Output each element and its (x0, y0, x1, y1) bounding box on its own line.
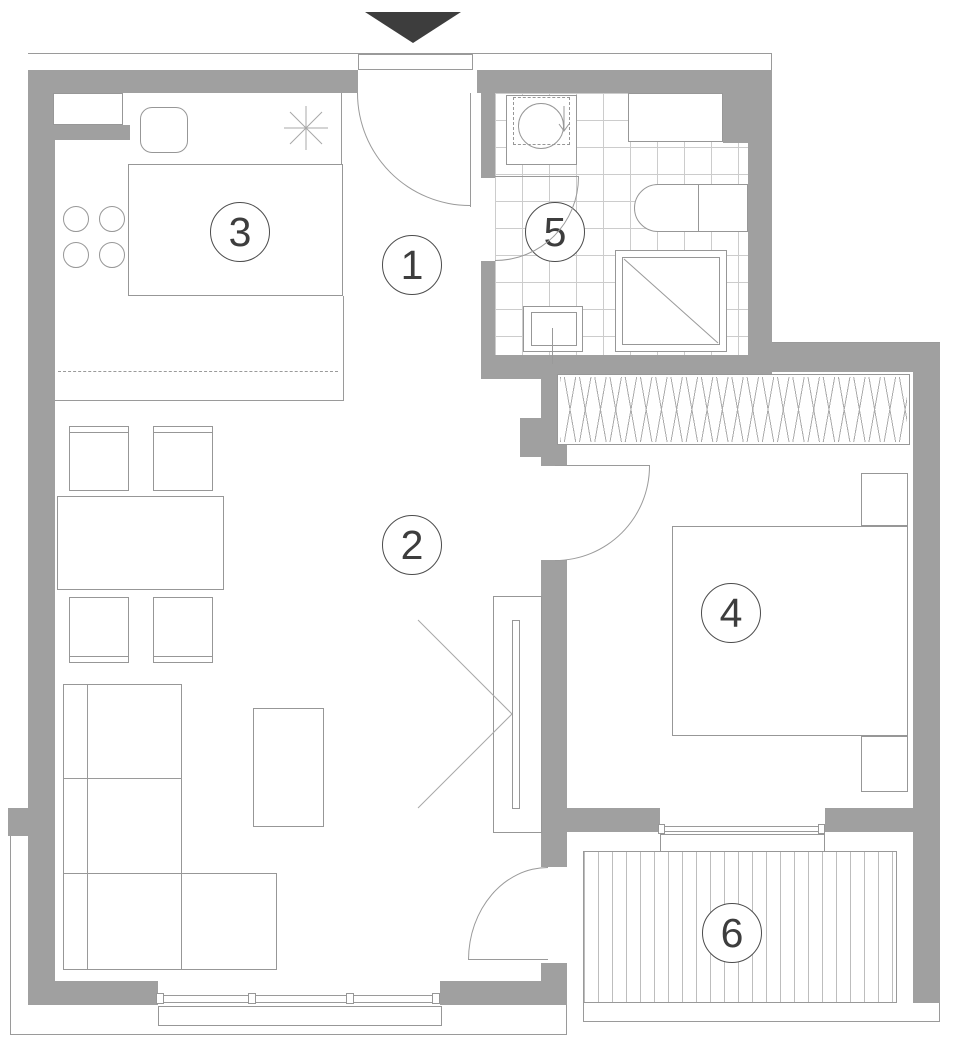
floor-plan: 1 2 3 4 5 6 (0, 0, 965, 1052)
bedroom-door-swing-arc (555, 466, 650, 561)
room-label-2: 2 (382, 515, 442, 575)
window-mullion (658, 824, 665, 834)
window-mullion (818, 824, 825, 834)
window-sill (158, 1006, 442, 1026)
wall-bath-right (748, 70, 772, 355)
entrance-arrow-icon (365, 12, 461, 43)
wall-right (913, 343, 940, 1003)
cooktop-burner (63, 242, 89, 268)
coffee-table (253, 708, 324, 827)
kitchen-overhead-cabinet-dashed (58, 371, 338, 372)
kitchen-counter-right-edge (341, 93, 342, 164)
wall-bedroom-bottom-left (541, 808, 660, 832)
window-mullion (432, 993, 440, 1004)
room-label-3: 3 (210, 202, 270, 262)
dining-chair (69, 426, 129, 491)
wall-bath-left-lower (481, 261, 495, 357)
wall-left-bump (8, 808, 28, 836)
kitchen-peninsula-right-edge (343, 296, 344, 400)
sofa-backrest-line (87, 685, 88, 969)
toilet-tank (698, 184, 748, 232)
wall-top-left (28, 70, 358, 93)
living-window-glazing (160, 995, 438, 996)
entrance-door-swing-arc (357, 93, 470, 206)
chair-backrest-line (70, 656, 128, 657)
room-label-6: 6 (702, 903, 762, 963)
kitchen-sink (140, 107, 188, 153)
window-mullion (248, 993, 256, 1004)
wall-bath-left-upper (481, 93, 495, 178)
room-label-1: 1 (382, 235, 442, 295)
kitchen-niche (53, 93, 123, 125)
wall-bedroom-top (748, 343, 937, 372)
outline-terrace-left (583, 1003, 584, 1022)
stove-asterisk-icon (284, 106, 328, 150)
entrance-door-leaf (470, 93, 471, 207)
cooktop-burner (99, 206, 125, 232)
chair-backrest-line (154, 656, 212, 657)
room-label-4: 4 (701, 583, 761, 643)
wall-top-right (477, 70, 772, 93)
sofa-main-section (63, 873, 277, 970)
outline-bottom (10, 1034, 567, 1035)
wall-terrace-door-top (541, 832, 567, 867)
washing-machine-drum-icon (518, 103, 564, 149)
bathroom-sink-tap-line (552, 328, 553, 364)
wall-bath-niche-block (723, 93, 748, 143)
sofa-cushion-divider (64, 778, 182, 779)
bathroom-sink-inner (531, 312, 577, 346)
toilet-bowl (634, 184, 700, 232)
outline-left-lower (10, 835, 11, 1035)
bedroom-window-glazing (662, 826, 823, 827)
cooktop-burner (99, 242, 125, 268)
dining-chair (153, 597, 213, 663)
wall-bedroom-bottom-right (825, 808, 913, 832)
wall-bedroom-left (541, 560, 567, 832)
tv (512, 620, 520, 809)
wall-terrace-door-bottom (541, 963, 567, 1005)
outline-bottom-connect (566, 1004, 567, 1035)
wall-pillar (520, 418, 541, 457)
wall-kitchen-niche-strip (53, 125, 130, 140)
terrace-door-swing-arc (468, 867, 548, 960)
nightstand (861, 473, 908, 526)
window-sill (660, 834, 825, 852)
shower-inner (622, 257, 720, 345)
kitchen-peninsula-front-edge (55, 400, 344, 401)
outline-terrace-bottom (583, 1021, 940, 1022)
chair-backrest-line (154, 432, 212, 433)
bathroom-niche (628, 93, 723, 142)
dining-table (57, 496, 224, 590)
dining-chair (69, 597, 129, 663)
window-mullion (156, 993, 164, 1004)
wall-bottom-left (28, 981, 158, 1005)
dining-chair (153, 426, 213, 491)
window-mullion (346, 993, 354, 1004)
cooktop-burner (63, 206, 89, 232)
nightstand (861, 736, 908, 792)
chair-backrest-line (70, 432, 128, 433)
wardrobe-hatching (560, 377, 907, 442)
living-window-glazing (160, 1002, 438, 1003)
bedroom-window-glazing (662, 831, 823, 832)
entrance-recess (358, 54, 473, 70)
wall-left (28, 70, 55, 981)
